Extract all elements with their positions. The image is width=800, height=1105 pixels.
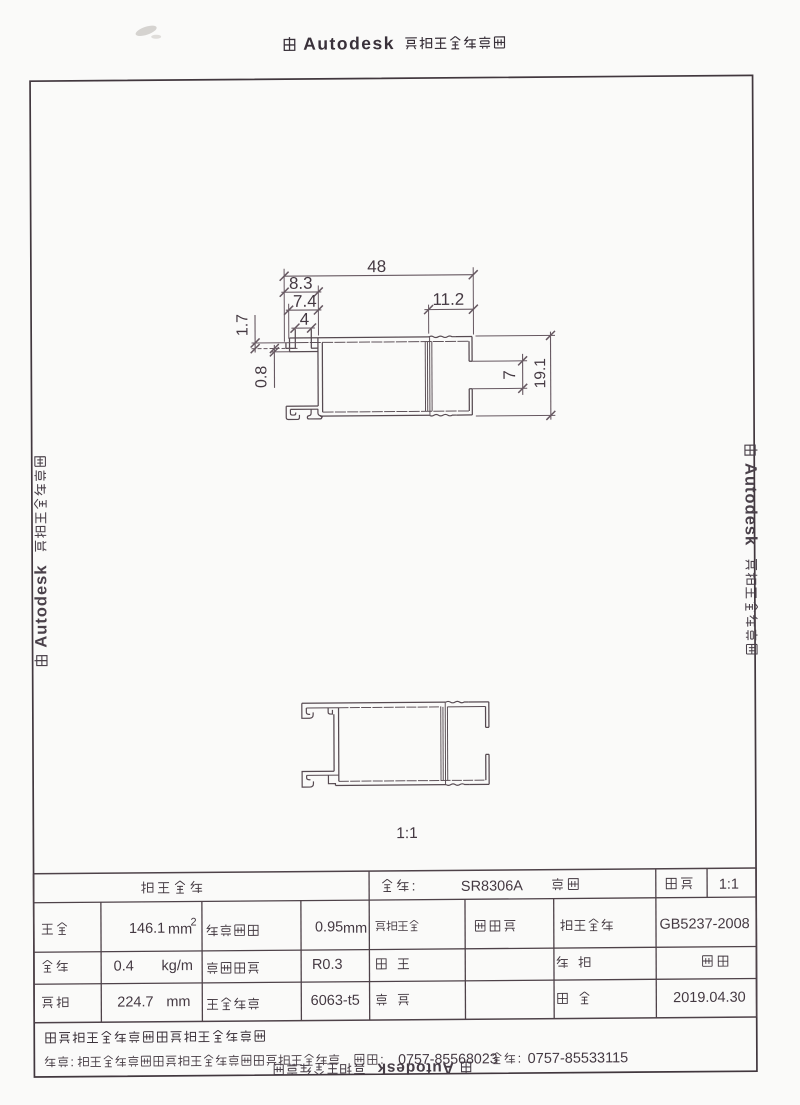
svg-text:146.1: 146.1 <box>129 921 165 937</box>
svg-text:SR8306A: SR8306A <box>461 878 523 894</box>
svg-text:Autodesk: Autodesk <box>741 463 759 546</box>
svg-text:6063-t5: 6063-t5 <box>311 993 360 1009</box>
svg-text:0.95: 0.95 <box>315 919 343 935</box>
svg-text:7: 7 <box>500 370 519 380</box>
svg-text:1.7: 1.7 <box>234 314 251 336</box>
svg-text:0.4: 0.4 <box>114 958 134 974</box>
svg-text:0757-85533115: 0757-85533115 <box>528 1050 629 1067</box>
svg-text::: : <box>412 878 416 894</box>
svg-text:kg/m: kg/m <box>162 958 193 974</box>
svg-text:48: 48 <box>367 257 386 276</box>
svg-text:1:1: 1:1 <box>396 825 418 842</box>
svg-text:mm: mm <box>343 921 367 937</box>
svg-text::: : <box>70 1054 74 1069</box>
svg-text:4: 4 <box>300 310 310 329</box>
svg-text:0.8: 0.8 <box>253 366 270 388</box>
svg-text:mm: mm <box>166 994 190 1010</box>
svg-text:GB5237-2008: GB5237-2008 <box>659 916 749 933</box>
svg-text:R0.3: R0.3 <box>312 957 343 973</box>
svg-text:mm: mm <box>168 921 192 937</box>
svg-text:8.3: 8.3 <box>289 274 313 293</box>
svg-text:224.7: 224.7 <box>117 994 153 1010</box>
svg-text:Autodesk: Autodesk <box>32 564 50 647</box>
svg-text:Autodesk: Autodesk <box>303 33 395 54</box>
svg-text:19.1: 19.1 <box>532 358 549 388</box>
svg-text:7.4: 7.4 <box>293 292 317 311</box>
svg-text:0757-85568023: 0757-85568023 <box>398 1051 498 1068</box>
svg-text:11.2: 11.2 <box>432 290 464 309</box>
svg-text:2019.04.30: 2019.04.30 <box>673 990 746 1007</box>
svg-text:2: 2 <box>190 916 196 928</box>
svg-text::: : <box>518 1051 522 1066</box>
svg-text:1:1: 1:1 <box>719 877 739 893</box>
svg-text::: : <box>380 1052 384 1067</box>
